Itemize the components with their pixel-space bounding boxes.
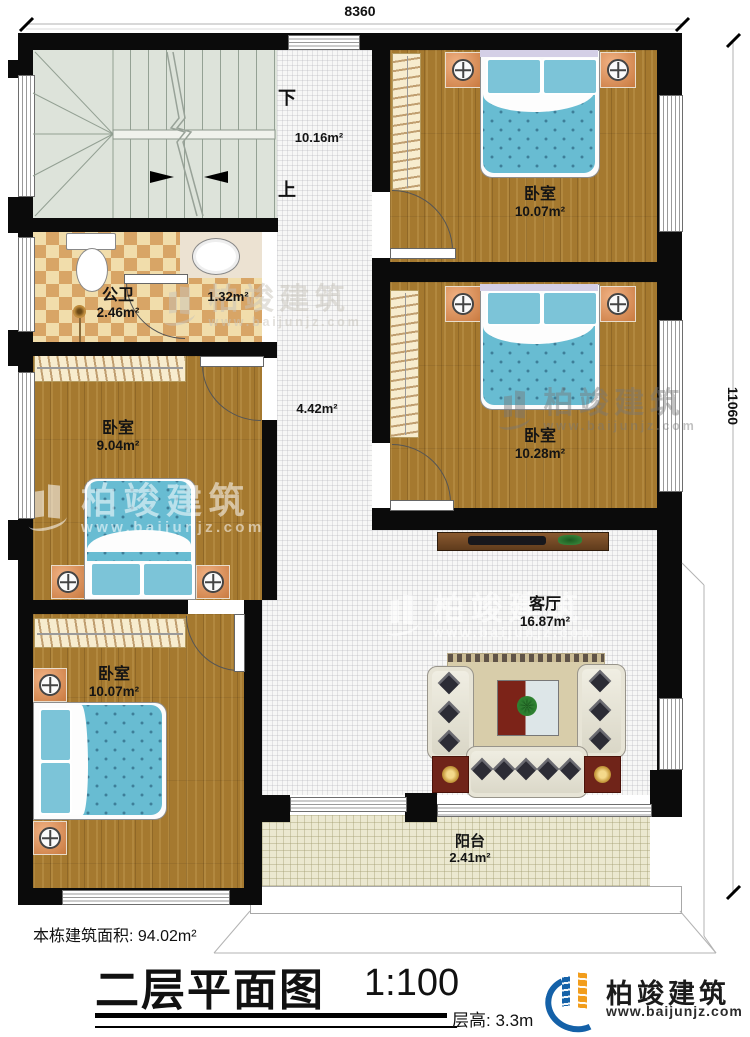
room-area: 9.04m²: [58, 438, 178, 453]
window: [659, 698, 683, 770]
cushion: [438, 672, 461, 695]
nightstand: [33, 821, 67, 855]
door-leaf: [390, 248, 456, 259]
wardrobe: [390, 290, 419, 438]
room-name: 公卫: [68, 287, 168, 305]
lamp-icon: [607, 59, 629, 81]
room-area: 2.46m²: [68, 305, 168, 320]
cushion: [589, 670, 612, 693]
room-label-washroom: 1.32m²: [198, 290, 258, 305]
room-label-bedroom-mid-left: 卧室 9.04m²: [58, 420, 178, 453]
room-name: 客厅: [490, 596, 600, 614]
room-label-bathroom: 公卫 2.46m²: [68, 287, 168, 320]
company-logo-icon: [548, 968, 602, 1026]
wall: [18, 218, 278, 232]
wall: [262, 342, 277, 358]
tv: [468, 536, 546, 545]
nightstand: [196, 565, 230, 599]
balcony-railing: [250, 886, 682, 914]
room-name: 卧室: [480, 186, 600, 204]
room-area: 10.07m²: [54, 684, 174, 699]
room-name: 卧室: [54, 666, 174, 684]
wardrobe: [392, 53, 421, 191]
cushion: [438, 730, 461, 753]
nightstand: [600, 286, 636, 322]
stair-treads: [113, 50, 278, 218]
room-area: 16.87m²: [490, 614, 600, 629]
room-label-bedroom-top-right: 卧室 10.07m²: [480, 186, 600, 219]
pillow: [39, 761, 72, 815]
door-leaf: [234, 614, 245, 672]
sofa-right: [577, 664, 626, 758]
stair-down-label: 下: [278, 84, 296, 110]
pillow: [542, 58, 598, 95]
hall-corridor-floor: [277, 50, 372, 530]
drain-stem: [79, 318, 81, 342]
table-medallion: [442, 766, 459, 783]
wall: [372, 262, 668, 282]
room-name: 卧室: [480, 428, 600, 446]
wall-pier: [8, 330, 19, 366]
sheet-title: 二层平面图: [95, 954, 325, 1018]
wall-pier: [8, 197, 19, 233]
nightstand: [445, 52, 481, 88]
sheet-scale: 1:100: [364, 962, 459, 1005]
table-plant: [517, 696, 537, 716]
window: [659, 95, 683, 232]
cushion: [515, 758, 538, 781]
nightstand: [600, 52, 636, 88]
nightstand: [51, 565, 85, 599]
cushion: [471, 758, 494, 781]
company-url: www.baijunjz.com: [606, 1003, 743, 1019]
wardrobe: [34, 618, 186, 648]
window: [437, 804, 652, 817]
wall: [18, 342, 277, 356]
pillow: [142, 562, 194, 597]
lamp-icon: [452, 59, 474, 81]
wall: [372, 33, 390, 192]
window: [18, 237, 35, 332]
lamp-icon: [202, 571, 224, 593]
cushion: [438, 701, 461, 724]
table-medallion: [594, 766, 611, 783]
lamp-icon: [607, 293, 629, 315]
title-rule-thick: [95, 1013, 447, 1018]
wall-pillar: [405, 793, 437, 822]
pillow: [486, 58, 542, 95]
room-label-living: 客厅 16.87m²: [490, 596, 600, 629]
room-label-balcony: 阳台 2.41m²: [420, 834, 520, 865]
pillow: [39, 708, 72, 762]
sliding-door: [290, 797, 407, 812]
door-leaf: [390, 500, 454, 511]
room-label-hall: 10.16m²: [269, 131, 369, 146]
bed-headboard: [480, 50, 598, 57]
wall-pillar: [650, 770, 682, 817]
nightstand: [445, 286, 481, 322]
wall: [262, 420, 277, 600]
sofa-main: [466, 746, 588, 798]
window: [18, 372, 35, 519]
window: [659, 320, 683, 492]
logo-tower-orange: [575, 969, 590, 1011]
cushion: [493, 758, 516, 781]
door-leaf: [124, 274, 188, 284]
room-area: 10.28m²: [480, 446, 600, 461]
wardrobe: [34, 352, 186, 382]
door-leaf: [200, 356, 264, 367]
room-name: 卧室: [58, 420, 178, 438]
pillow: [486, 291, 542, 326]
room-label-bedroom-bottom-left: 卧室 10.07m²: [54, 666, 174, 699]
wall: [372, 508, 668, 530]
sofa-left: [427, 666, 474, 760]
stair-up-label: 上: [278, 176, 296, 202]
wall-pier: [8, 520, 19, 560]
lamp-icon: [39, 827, 61, 849]
plant-decor: [558, 535, 582, 545]
pillow: [542, 291, 598, 326]
end-table: [432, 756, 469, 793]
sink: [192, 238, 240, 275]
wall: [244, 600, 262, 905]
cushion: [589, 728, 612, 751]
floor-height: 层高: 3.3m: [452, 1006, 533, 1031]
window: [288, 35, 360, 50]
room-label-bedroom-mid-right: 卧室 10.28m²: [480, 428, 600, 461]
total-building-area: 本栋建筑面积: 94.02m²: [33, 922, 197, 946]
wall-pillar: [262, 795, 290, 822]
bed-headboard: [480, 284, 598, 291]
cushion: [537, 758, 560, 781]
end-table: [584, 756, 621, 793]
window: [62, 890, 230, 905]
room-area: 2.41m²: [420, 851, 520, 866]
wall: [18, 600, 188, 614]
room-label-corridor: 4.42m²: [267, 402, 367, 417]
logo-tower-blue: [560, 974, 572, 1008]
wall: [372, 282, 390, 443]
dimension-right: 11060: [725, 374, 741, 438]
title-rule-thin: [95, 1026, 457, 1028]
toilet-bowl: [76, 248, 108, 292]
room-area: 10.07m²: [480, 204, 600, 219]
room-name: 阳台: [420, 834, 520, 851]
lamp-icon: [452, 293, 474, 315]
pillow: [90, 562, 142, 597]
cushion: [559, 758, 582, 781]
window: [18, 75, 35, 197]
dimension-top: 8360: [330, 3, 390, 19]
floor-plan-sheet: 卧室 10.07m² 卧室 10.28m² 卧室 9.04m² 卧室 10.07…: [0, 0, 750, 1037]
cushion: [589, 699, 612, 722]
lamp-icon: [57, 571, 79, 593]
